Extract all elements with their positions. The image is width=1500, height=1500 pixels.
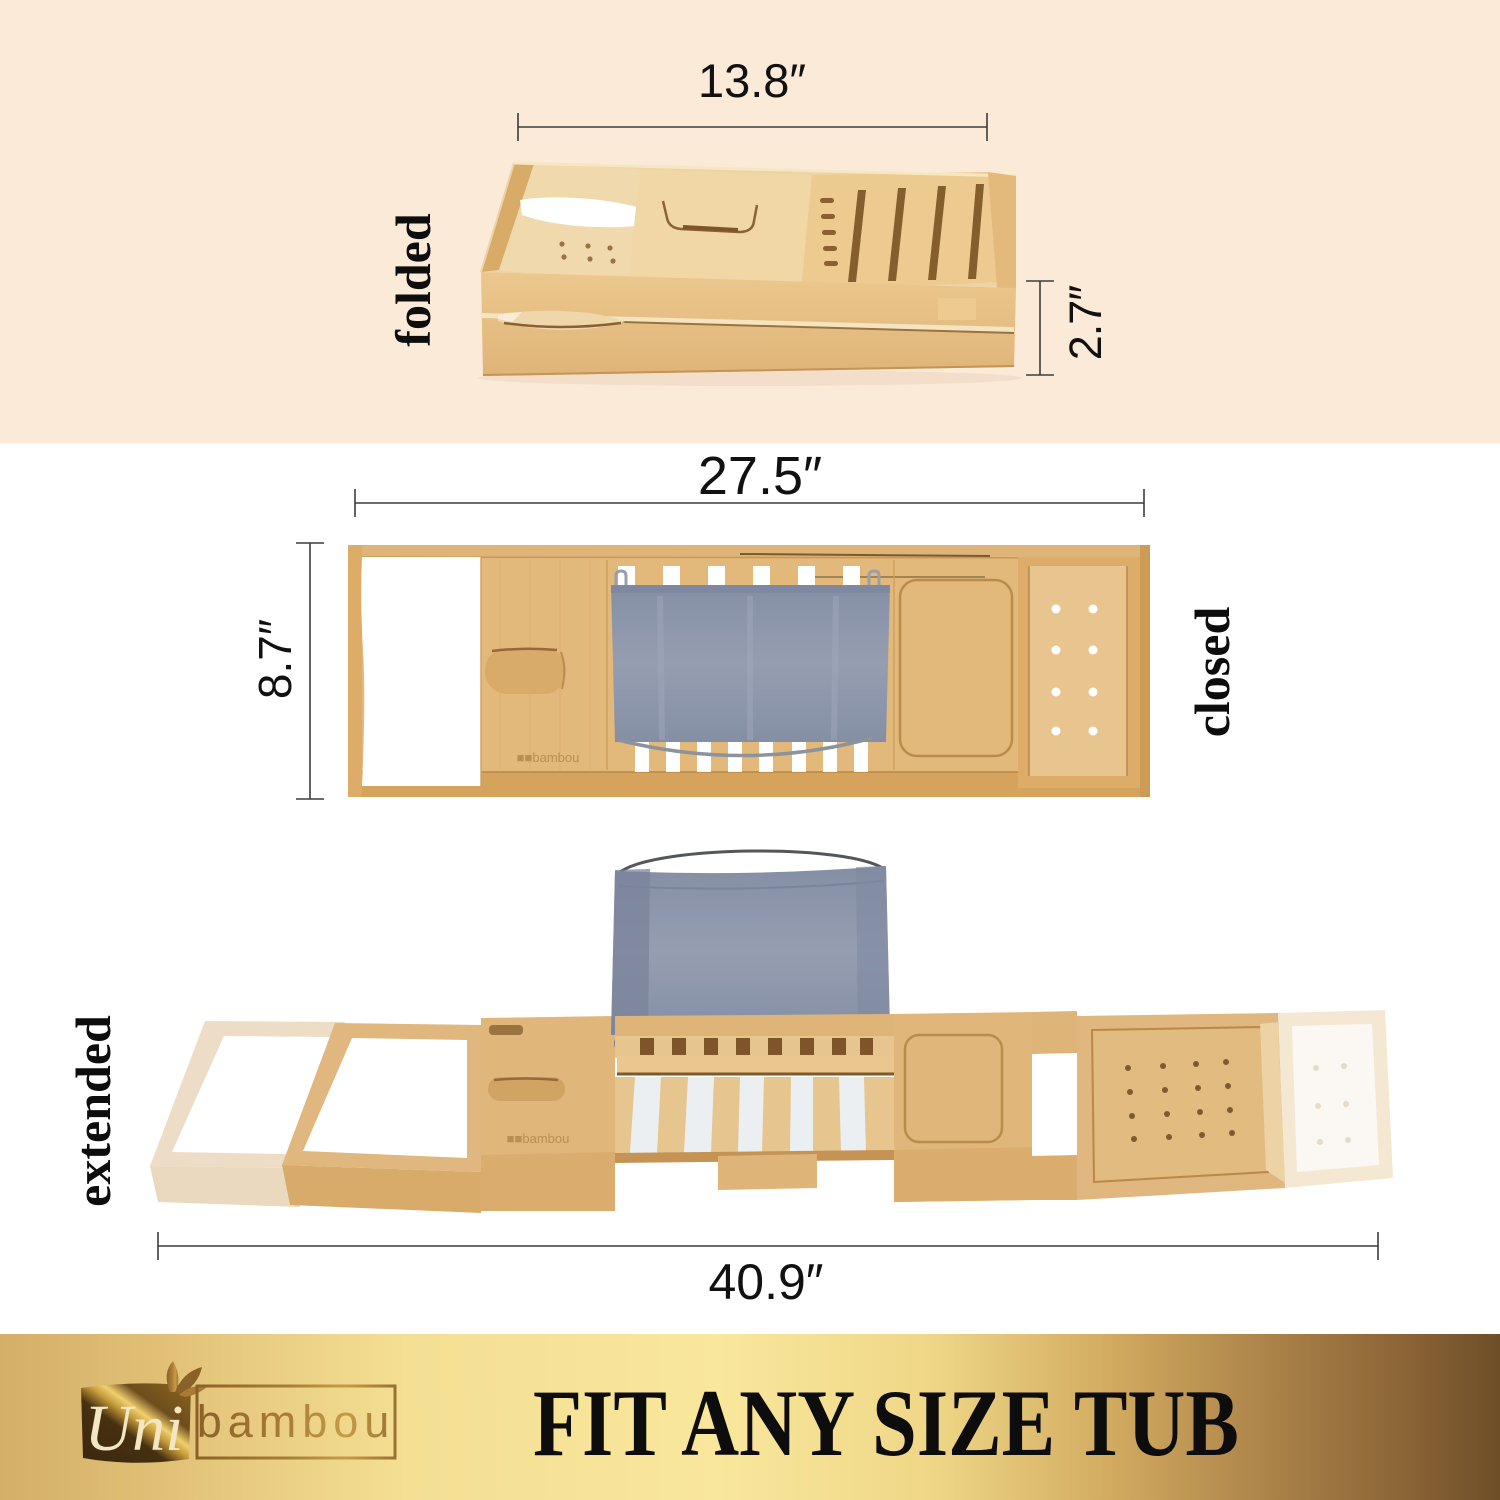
- svg-text:2.7″: 2.7″: [1060, 285, 1111, 361]
- svg-text:40.9″: 40.9″: [708, 1254, 823, 1310]
- svg-text:8.7″: 8.7″: [249, 619, 301, 699]
- svg-text:■■bambou: ■■bambou: [507, 1131, 570, 1146]
- svg-text:folded: folded: [385, 213, 441, 347]
- svg-text:■■bambou: ■■bambou: [517, 750, 580, 765]
- svg-text:27.5″: 27.5″: [698, 446, 822, 506]
- svg-text:Uni: Uni: [85, 1392, 184, 1465]
- svg-text:extended: extended: [65, 1015, 121, 1207]
- svg-text:13.8″: 13.8″: [698, 54, 806, 107]
- svg-text:bambou: bambou: [197, 1396, 396, 1447]
- svg-text:closed: closed: [1184, 607, 1240, 738]
- svg-text:FIT ANY SIZE TUB: FIT ANY SIZE TUB: [533, 1370, 1239, 1476]
